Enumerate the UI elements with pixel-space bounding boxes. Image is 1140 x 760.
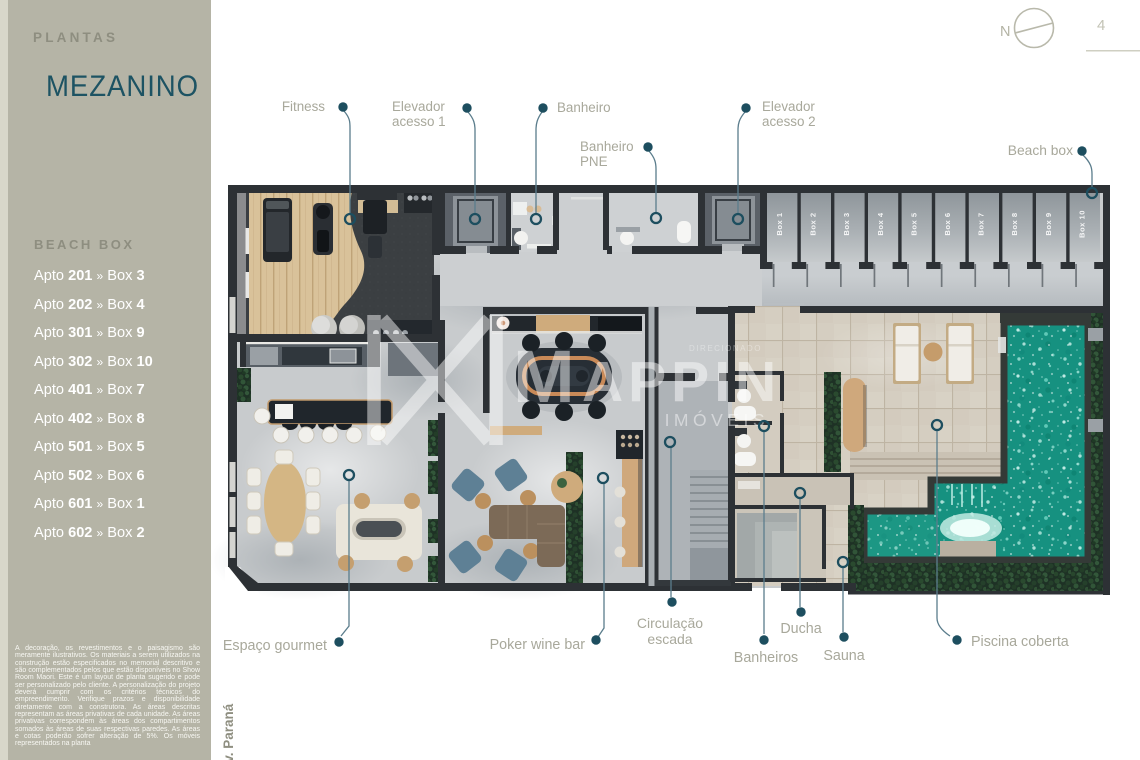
svg-text:acesso 1: acesso 1 (392, 114, 446, 129)
svg-text:Banheiro: Banheiro (557, 100, 611, 115)
svg-text:Banheiro: Banheiro (580, 139, 634, 154)
svg-text:Ducha: Ducha (780, 621, 821, 637)
svg-text:Sauna: Sauna (823, 648, 864, 664)
svg-text:Espaço gourmet: Espaço gourmet (223, 638, 327, 654)
svg-text:Box 7: Box 7 (977, 212, 986, 235)
svg-text:escada: escada (647, 631, 692, 647)
svg-text:Elevador: Elevador (762, 99, 815, 114)
svg-text:IMÓVEIS: IMÓVEIS (665, 409, 769, 430)
svg-text:4: 4 (1097, 17, 1105, 34)
svg-text:Box 3: Box 3 (842, 212, 851, 235)
svg-text:Beach box: Beach box (1008, 143, 1073, 158)
svg-text:Box 8: Box 8 (1010, 212, 1019, 235)
svg-text:Banheiros: Banheiros (734, 650, 798, 666)
svg-text:APPIN: APPIN (582, 350, 781, 414)
svg-text:N: N (1000, 24, 1010, 40)
svg-text:Box 9: Box 9 (1044, 212, 1053, 235)
svg-text:Poker wine bar: Poker wine bar (490, 637, 586, 653)
svg-text:Box 10: Box 10 (1077, 210, 1086, 238)
svg-text:acesso 2: acesso 2 (762, 114, 816, 129)
svg-text:Fitness: Fitness (282, 99, 325, 114)
svg-text:M: M (513, 335, 575, 418)
svg-text:Box 1: Box 1 (775, 212, 784, 235)
svg-text:Box 5: Box 5 (909, 212, 918, 235)
svg-text:Piscina coberta: Piscina coberta (971, 634, 1069, 650)
svg-text:Box 6: Box 6 (943, 212, 952, 235)
svg-text:Circulação: Circulação (637, 615, 703, 631)
svg-text:PNE: PNE (580, 154, 608, 169)
svg-text:Box 4: Box 4 (876, 212, 885, 235)
svg-text:Elevador: Elevador (392, 99, 445, 114)
svg-text:Box 2: Box 2 (809, 212, 818, 235)
